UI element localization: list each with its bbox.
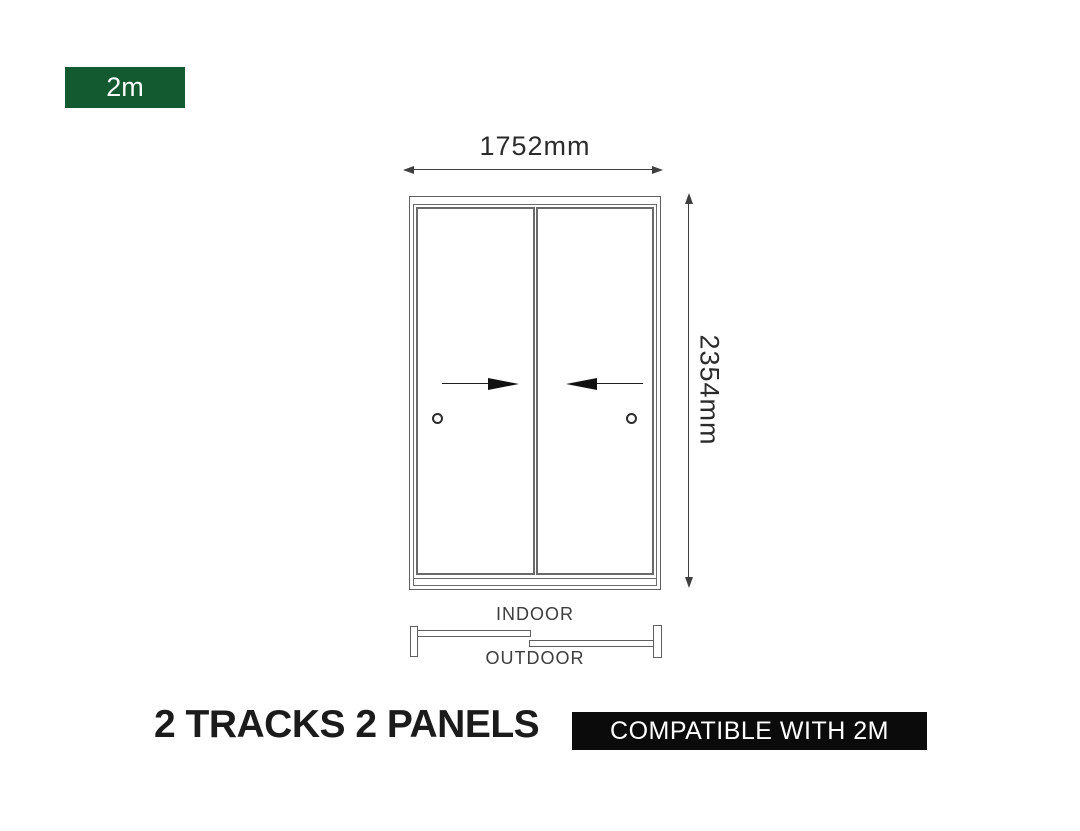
width-dimension-arrow: [403, 163, 663, 176]
plan-indoor-panel-track: [417, 630, 531, 637]
door-frame: [409, 196, 661, 590]
left-panel-slide-arrow: [442, 377, 519, 390]
arrow-left-icon: [566, 378, 597, 390]
door-frame-inner-profile: [413, 204, 657, 586]
dimension-line: [414, 169, 652, 170]
right-panel-handle: [626, 413, 637, 424]
indoor-label: INDOOR: [409, 604, 661, 625]
size-badge-label: 2m: [106, 72, 144, 103]
plan-outdoor-panel-track: [529, 640, 655, 647]
dimension-line: [688, 204, 689, 577]
arrow-down-icon: [685, 577, 693, 588]
width-dimension-label: 1752mm: [409, 131, 661, 162]
arrow-up-icon: [685, 193, 693, 204]
compatibility-badge-label: COMPATIBLE WITH 2M: [610, 717, 889, 746]
arrow-shaft: [597, 383, 643, 384]
arrow-right-icon: [652, 166, 663, 174]
left-panel-handle: [432, 413, 443, 424]
arrow-left-icon: [403, 166, 414, 174]
door-panels-row: [416, 207, 654, 575]
outdoor-label: OUTDOOR: [409, 648, 661, 669]
product-title: 2 TRACKS 2 PANELS: [154, 703, 539, 747]
size-badge: 2m: [65, 67, 185, 108]
bottom-track-line: [414, 578, 656, 579]
right-panel-slide-arrow: [566, 377, 643, 390]
door-panel-left: [416, 207, 535, 575]
compatibility-badge: COMPATIBLE WITH 2M: [572, 712, 927, 750]
arrow-shaft: [442, 383, 488, 384]
product-diagram-canvas: 2m 1752mm 2354mm INDOOR: [0, 0, 1080, 831]
height-dimension-label: 2354mm: [694, 334, 725, 445]
door-panel-right: [536, 207, 655, 575]
arrow-right-icon: [488, 378, 519, 390]
